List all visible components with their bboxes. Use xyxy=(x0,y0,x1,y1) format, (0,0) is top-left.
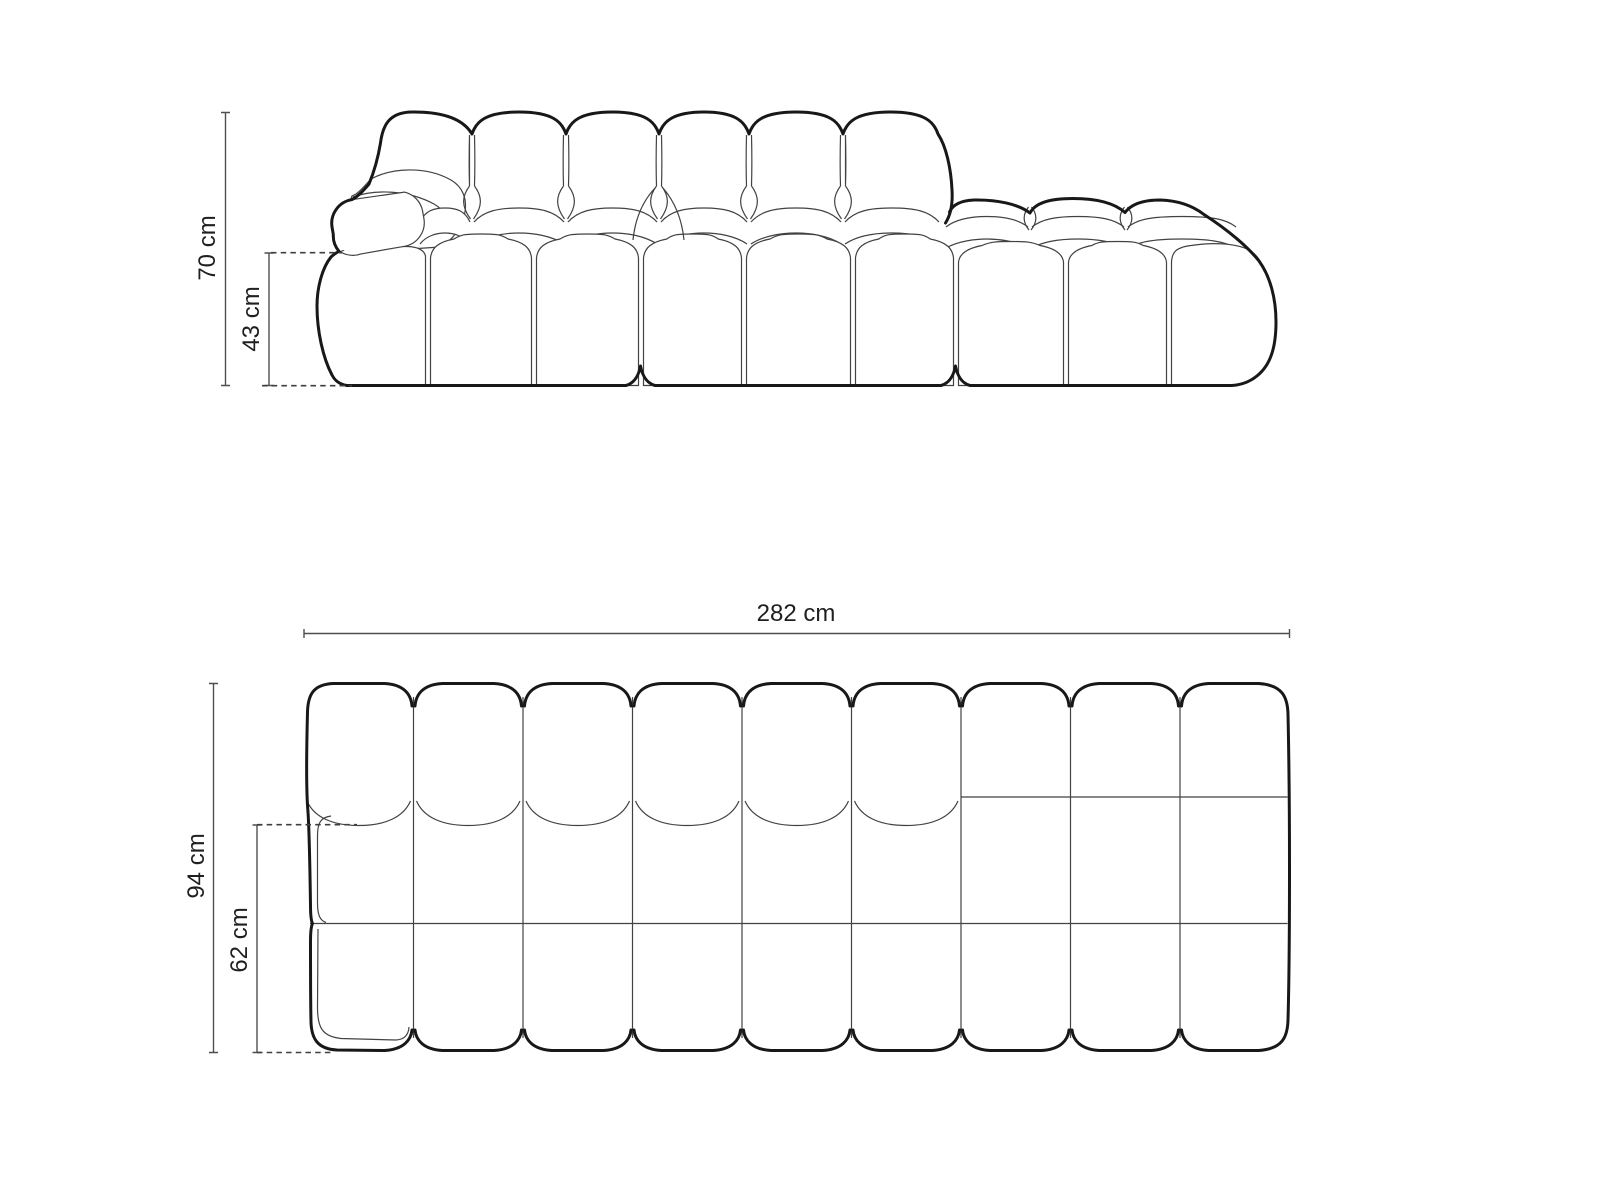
svg-text:70 cm: 70 cm xyxy=(194,215,221,280)
svg-text:94 cm: 94 cm xyxy=(183,833,210,898)
svg-text:282 cm: 282 cm xyxy=(757,600,836,627)
svg-text:43 cm: 43 cm xyxy=(238,286,265,351)
svg-text:62 cm: 62 cm xyxy=(226,907,253,972)
